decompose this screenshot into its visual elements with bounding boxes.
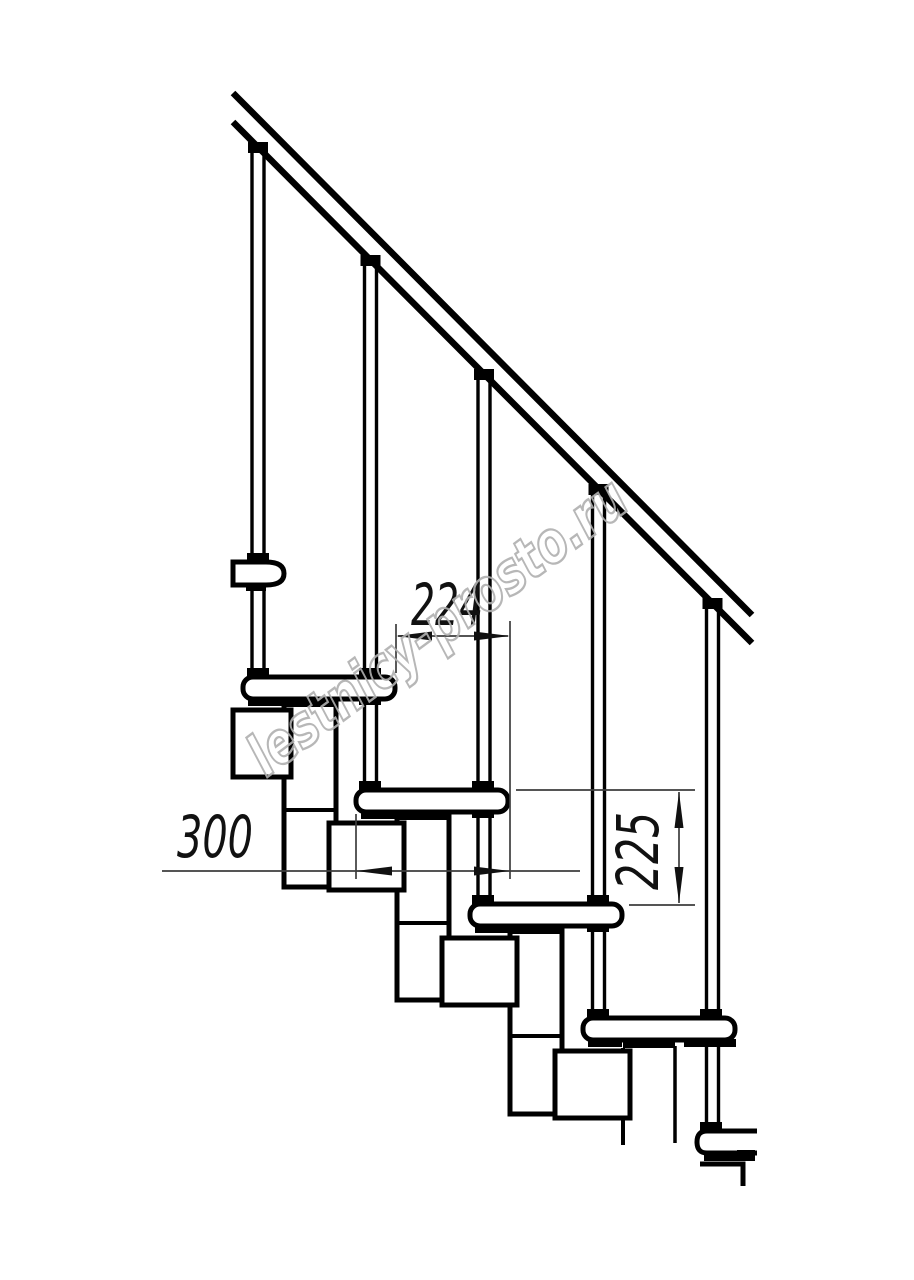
drawing-canvas: 224 300 225 lestnicy-prosto.ru [0, 0, 914, 1280]
tread-5-partial [697, 1131, 757, 1153]
baluster-1-rail-cap [248, 142, 268, 153]
watermark-text: lestnicy-prosto.ru [234, 464, 640, 789]
baluster-5-rail-cap [703, 598, 723, 609]
tread-3 [470, 904, 622, 926]
handrail-top-line [233, 93, 752, 615]
dim-225-arrow-up [675, 792, 684, 828]
tread-0-partial [233, 562, 284, 585]
baluster-2-rail-cap [361, 255, 381, 266]
baluster-3-rail-cap [474, 369, 494, 380]
baluster-5 [703, 598, 723, 1135]
dim-225-label: 225 [604, 812, 672, 890]
module-box-4 [555, 1051, 630, 1118]
baluster-4 [589, 484, 609, 1022]
dim-225-arrow-down [675, 867, 684, 903]
dim-300-label: 300 [177, 803, 253, 871]
module-spine [233, 703, 743, 1186]
module-box-5-partial [700, 1164, 743, 1186]
tread-2 [356, 790, 508, 812]
tread-4 [583, 1018, 735, 1040]
baluster-1 [248, 142, 268, 681]
module-box-3 [442, 938, 517, 1005]
dim-300-arrow-right [474, 867, 510, 876]
staircase-drawing: 224 300 225 lestnicy-prosto.ru [0, 0, 914, 1280]
module-box-2 [329, 823, 404, 890]
